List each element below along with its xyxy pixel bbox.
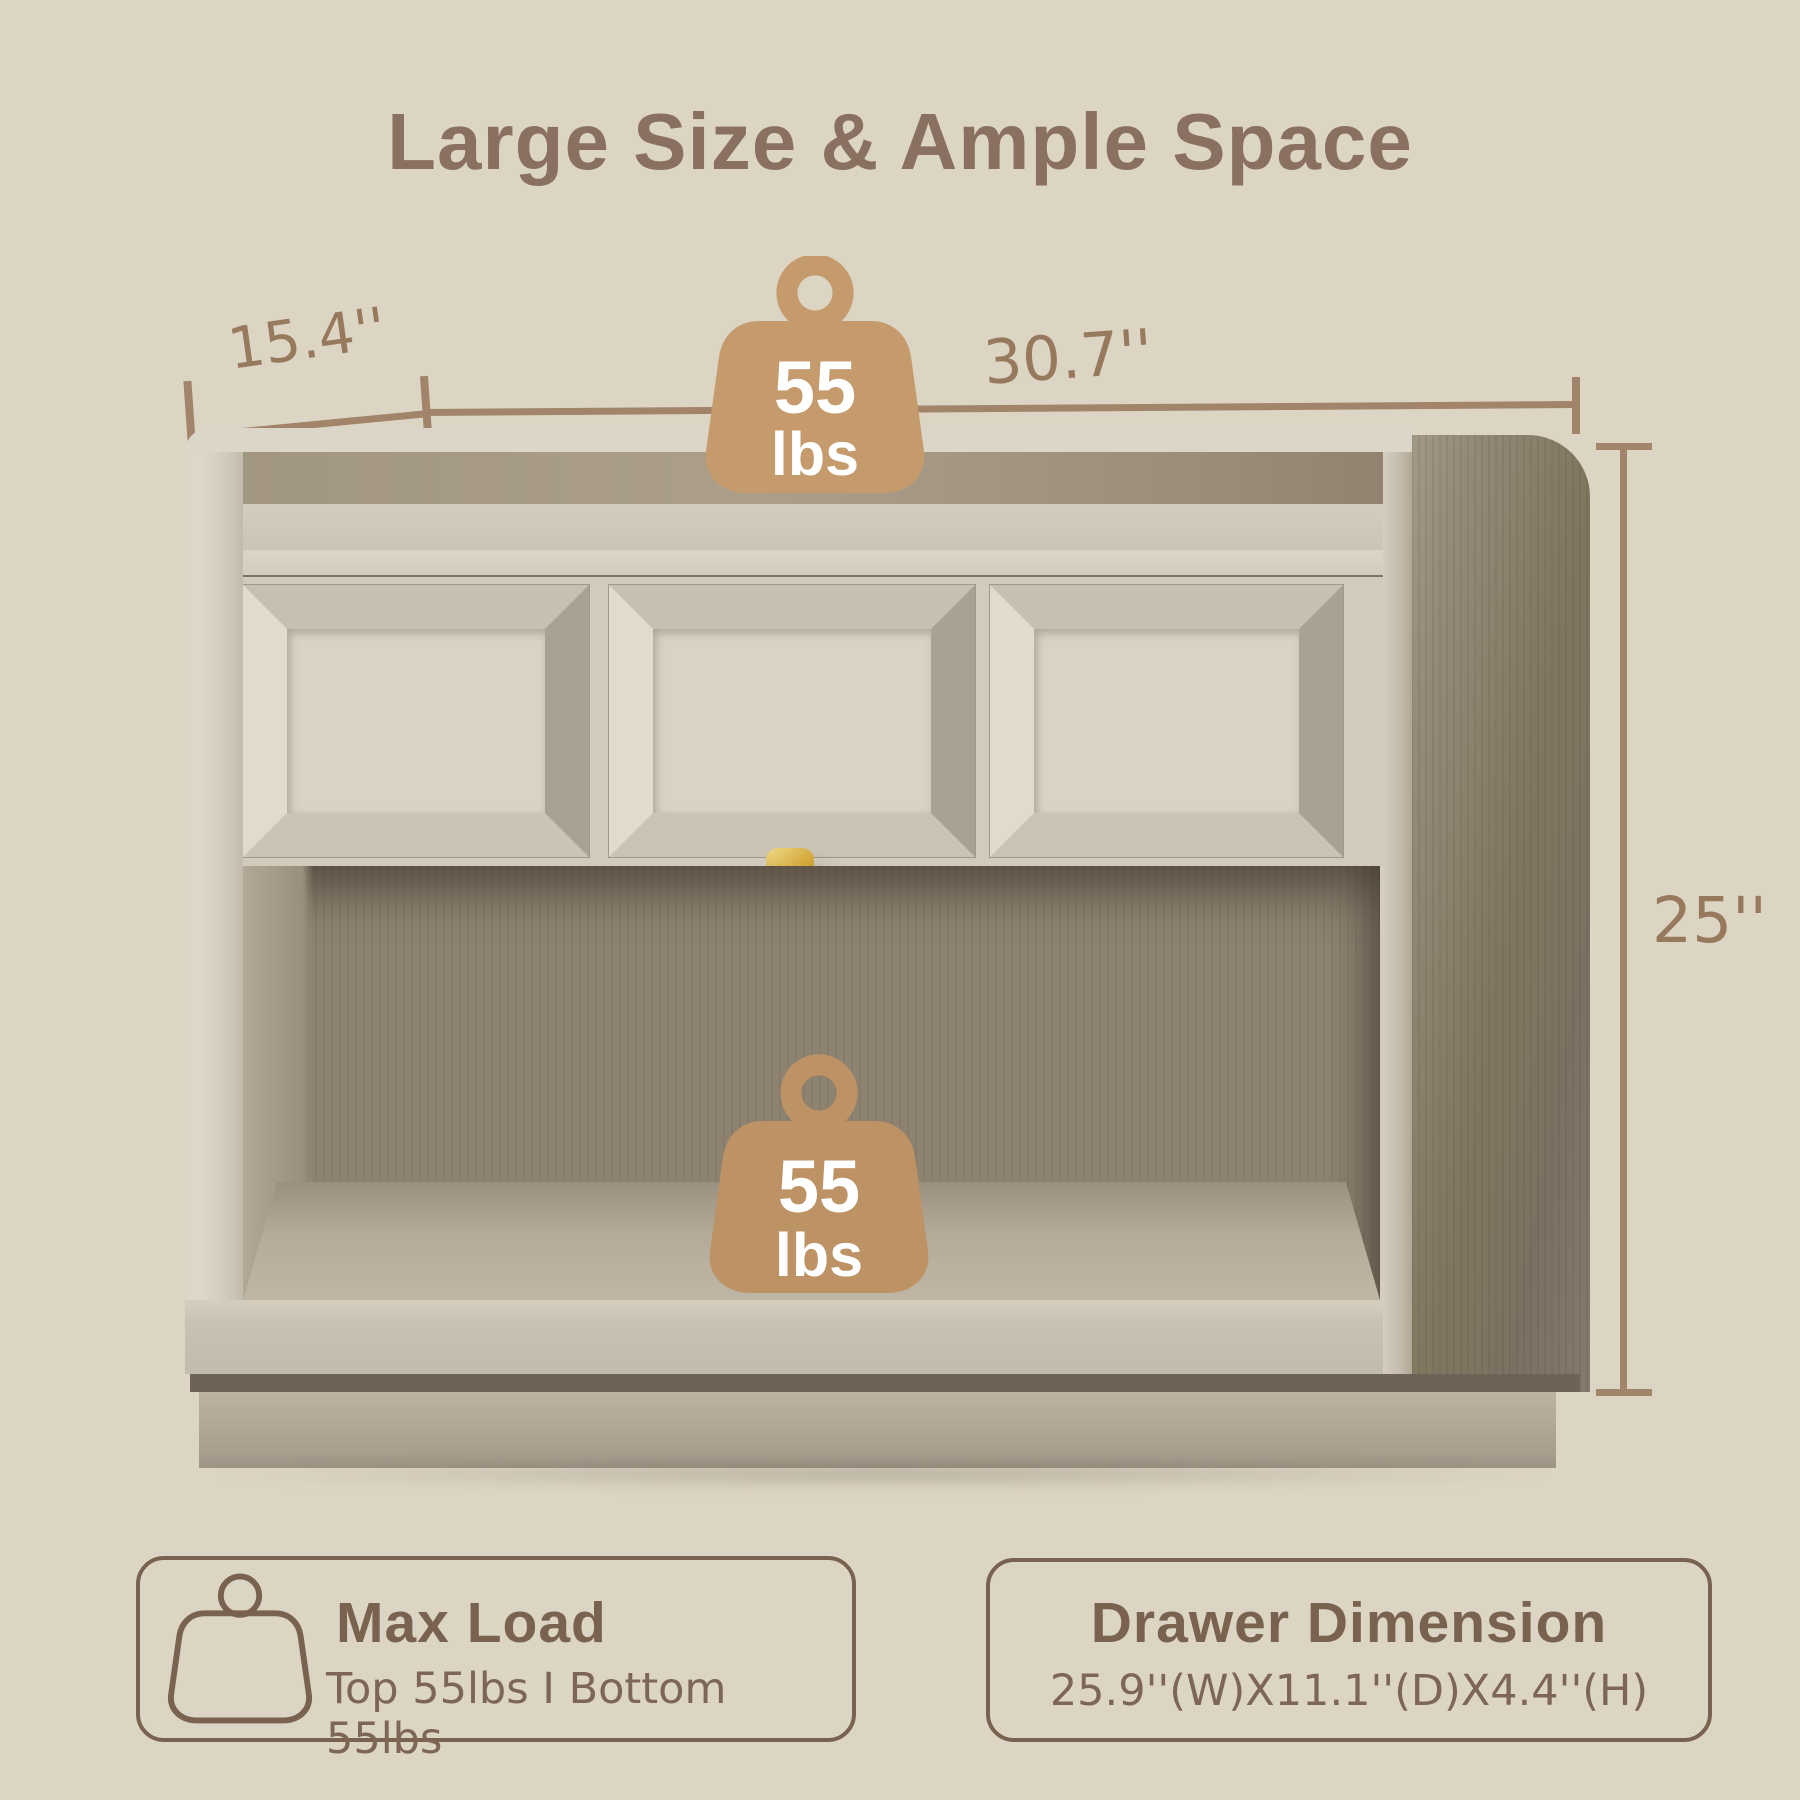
plinth-reveal-groove — [190, 1374, 1580, 1392]
top-load-badge: 55 lbs — [698, 256, 932, 510]
height-tick-top — [1596, 443, 1652, 450]
front-right-corner-shading — [1383, 452, 1412, 1374]
bottom-load-badge: 55 lbs — [702, 1054, 936, 1312]
right-door-panel — [990, 585, 1343, 857]
product-infographic: Large Size & Ample Space 15.4'' 30.7'' 2… — [0, 0, 1800, 1800]
dimension-tick-middle — [420, 376, 432, 434]
left-stile — [185, 452, 243, 1300]
drawer-panel-row — [185, 577, 1412, 866]
height-tick-bottom — [1596, 1389, 1652, 1396]
top-load-value: 55 — [698, 353, 932, 423]
top-load-unit: lbs — [698, 426, 932, 484]
drawer-dimension-card: Drawer Dimension 25.9''(W)X11.1''(D)X4.4… — [986, 1558, 1712, 1742]
max-load-card: Max Load Top 55lbs I Bottom 55lbs — [136, 1556, 856, 1742]
drawer-dimension-title: Drawer Dimension — [990, 1590, 1708, 1656]
front-width-label: 30.7'' — [936, 313, 1200, 402]
max-load-detail: Top 55lbs I Bottom 55lbs — [326, 1664, 852, 1764]
drawer-dimension-detail: 25.9''(W)X11.1''(D)X4.4''(H) — [990, 1666, 1708, 1716]
ground-shadow — [193, 1460, 1573, 1488]
page-title: Large Size & Ample Space — [0, 96, 1800, 188]
table-top-surface — [237, 504, 1390, 550]
side-width-label: 15.4'' — [179, 289, 436, 389]
dimension-line-height — [1620, 446, 1627, 1394]
bottom-load-unit: lbs — [702, 1227, 936, 1285]
max-load-title: Max Load — [336, 1590, 607, 1656]
top-apron — [185, 550, 1412, 575]
dimension-tick-right — [1572, 377, 1580, 434]
console-table-illustration — [185, 428, 1590, 1488]
left-door-panel — [243, 585, 589, 857]
weight-outline-icon — [166, 1572, 314, 1730]
dimension-line-front-width — [426, 401, 1578, 416]
plinth-base — [199, 1392, 1556, 1468]
wood-grain-texture — [1390, 435, 1590, 1392]
cabinet-side-panel — [1390, 435, 1590, 1392]
center-drawer-panel — [609, 585, 975, 857]
height-label: 25'' — [1652, 884, 1800, 957]
bottom-load-value: 55 — [702, 1152, 936, 1222]
